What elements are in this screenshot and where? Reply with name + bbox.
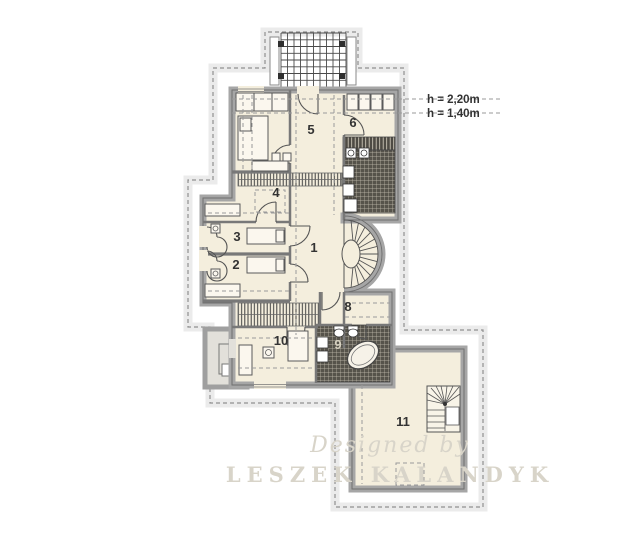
toilet-bath6 (343, 166, 354, 178)
pillow-room5 (240, 118, 251, 131)
balcony-door-gap (297, 86, 319, 94)
floor-plan-drawing: 1 2 3 4 5 6 8 9 10 11 h = 2,20m h = 1,40… (0, 0, 638, 556)
dresser-room5 (252, 161, 288, 171)
floor-plan-page: 1 2 3 4 5 6 8 9 10 11 h = 2,20m h = 1,40… (0, 0, 638, 556)
sink-bath9-1 (334, 329, 344, 337)
pergola-rail-right (347, 37, 356, 85)
window-left-2 (199, 250, 208, 271)
basin-room2 (211, 269, 220, 278)
room-label-2: 2 (232, 257, 239, 272)
wardrobe-room5 (236, 93, 288, 111)
sink-bath6-1 (346, 148, 356, 158)
height-annotation-220: h = 2,20m (427, 94, 480, 106)
toilet-bath9 (317, 337, 328, 348)
height-annotation-140: h = 1,40m (427, 108, 480, 120)
window-bottom (254, 381, 286, 389)
washer-bath9 (317, 351, 328, 362)
chair-room10 (263, 347, 274, 358)
room8-door-gap (322, 288, 340, 296)
pergola-rail-left (270, 37, 279, 85)
height-annotations: h = 2,20m h = 1,40m (427, 94, 480, 120)
watermark-author-name: LESZEK KALANDYK (226, 462, 554, 487)
room-label-11: 11 (396, 414, 410, 429)
pergola-grid (281, 33, 346, 87)
room-label-9: 9 (334, 337, 341, 352)
winder-staircase (427, 386, 460, 432)
room-label-8: 8 (344, 299, 351, 314)
room-label-3: 3 (233, 229, 240, 244)
terrace-door-gap (229, 339, 236, 358)
sink-bath6-2 (359, 148, 369, 158)
basin-room3 (211, 224, 220, 233)
shower-bath6 (344, 199, 357, 212)
room-label-6: 6 (349, 115, 356, 130)
room-label-4: 4 (272, 185, 280, 200)
room-label-5: 5 (307, 122, 314, 137)
watermark-designed-by: Designed by (309, 433, 470, 458)
room-label-10: 10 (274, 333, 288, 348)
bidet-bath6 (343, 184, 354, 196)
room-label-1: 1 (310, 240, 317, 255)
window-left-1 (199, 226, 208, 247)
pergola (270, 33, 356, 87)
sink-bath9-2 (348, 329, 358, 337)
wardrobe-room10 (239, 345, 252, 375)
wardrobe-room4 (205, 204, 240, 216)
desk-room10 (288, 331, 308, 361)
